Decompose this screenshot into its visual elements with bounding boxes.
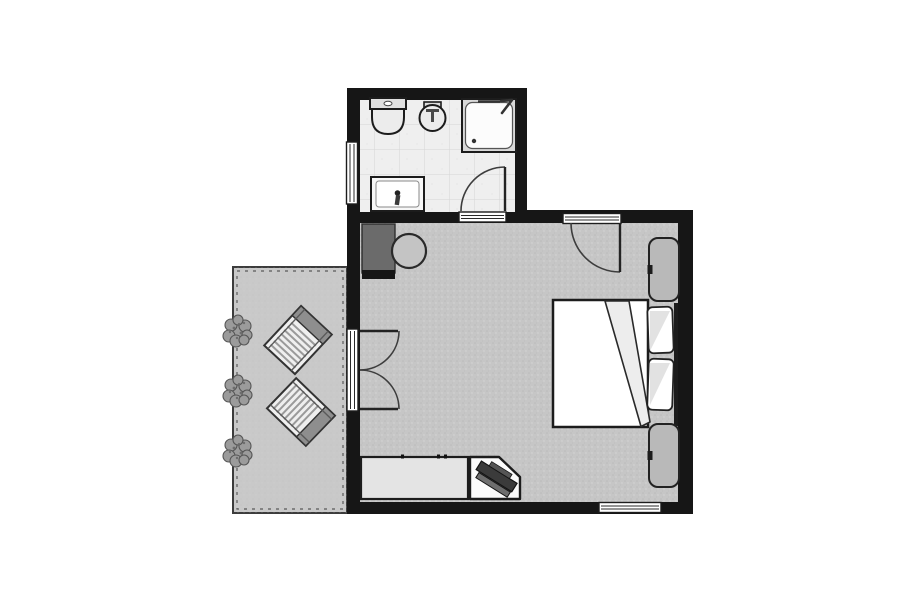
floor-plan-drawing <box>0 0 913 608</box>
terrace <box>223 267 347 513</box>
nightstand-handle <box>648 451 653 460</box>
floor-plan <box>0 0 913 608</box>
bidet <box>420 102 446 131</box>
pillow-top <box>647 307 674 354</box>
pillow-bottom <box>647 359 674 411</box>
nightstand-top <box>648 238 680 301</box>
bathroom-door-threshold <box>459 212 506 222</box>
washbasin <box>371 177 424 211</box>
shower-drain <box>472 139 476 143</box>
bedroom-window <box>599 503 661 513</box>
shower <box>462 99 516 152</box>
french-door-panel <box>347 329 358 411</box>
entry-door-panel <box>563 214 621 224</box>
sideboard <box>361 455 468 500</box>
double-bed <box>553 300 676 427</box>
nightstand-handle <box>648 265 653 274</box>
nightstand-bottom <box>648 424 680 487</box>
bathroom-window <box>347 142 358 204</box>
dark-desk <box>362 224 395 279</box>
round-stool <box>392 234 426 268</box>
toilet <box>370 98 406 134</box>
